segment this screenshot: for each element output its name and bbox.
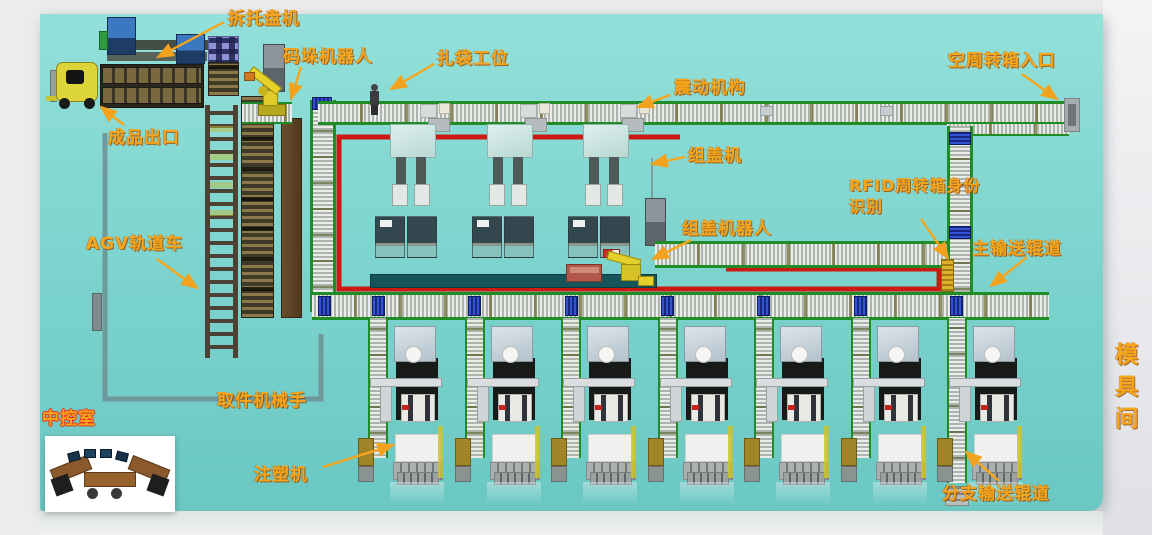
label-main-conveyor-roller: 主输送辊道 (972, 238, 1062, 260)
annotation-arrow-finished-product-exit (101, 107, 124, 125)
annotation-arrow-vibration-mechanism (638, 95, 670, 107)
annotation-arrows (0, 0, 1152, 535)
label-injection-molding-machine: 注塑机 (254, 464, 308, 486)
label-vibration-mechanism: 震动机构 (674, 77, 746, 99)
label-branch-conveyor-roller: 分支输送辊道 (942, 483, 1050, 505)
label-bagging-station: 扎袋工位 (437, 48, 509, 70)
annotation-arrow-rfid-turnover-box-identification (921, 219, 948, 258)
label-finished-product-exit: 成品出口 (108, 127, 180, 149)
annotation-arrow-main-conveyor-roller (991, 257, 1027, 286)
label-central-control-room: 中控室 (42, 408, 96, 430)
label-rfid-identification: RFID周转箱身份识别 (849, 176, 991, 218)
annotation-arrow-agv-rail-car (157, 259, 197, 288)
annotation-arrow-cap-assembly-robot (653, 240, 691, 259)
annotation-arrow-empty-turnover-box-entrance (1022, 74, 1057, 99)
label-palletizing-robot: 码垛机器人 (283, 46, 373, 68)
label-empty-turnover-box-entrance: 空周转箱入口 (948, 50, 1056, 72)
label-cap-assembly-robot: 组盖机器人 (682, 218, 772, 240)
annotation-arrow-injection-molding-machine (323, 445, 393, 467)
label-mold-room: 模具间 (1108, 342, 1138, 438)
label-pallet-unstacker: 拆托盘机 (228, 8, 300, 30)
annotation-arrow-pallet-unstacker (158, 22, 224, 57)
annotation-arrow-branch-conveyor-roller (966, 452, 999, 481)
annotation-arrow-palletizing-robot (291, 67, 301, 99)
factory-layout-scene: 拆托盘机 码垛机器人 扎袋工位 震动机构 空周转箱入口 成品出口 组盖机 RFI… (0, 0, 1152, 535)
label-agv-rail-car: AGV轨道车 (86, 233, 183, 255)
annotation-arrow-bagging-station (391, 64, 434, 89)
label-picking-manipulator: 取件机械手 (217, 390, 307, 412)
annotation-arrow-cap-assembly-machine (652, 157, 685, 164)
label-cap-assembly-machine: 组盖机 (688, 145, 742, 167)
